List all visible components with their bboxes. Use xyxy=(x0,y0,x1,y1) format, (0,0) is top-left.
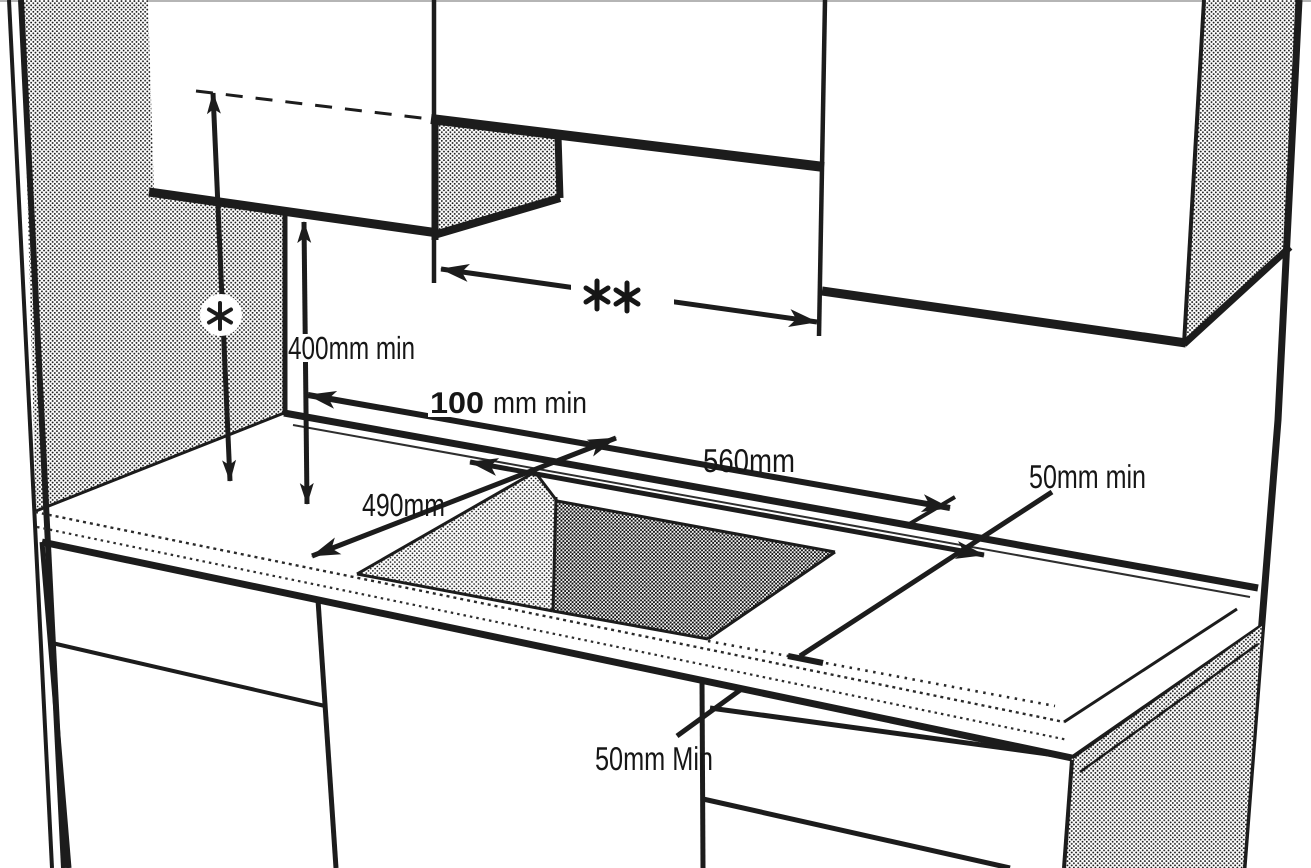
svg-text:50mm Min: 50mm Min xyxy=(595,740,713,777)
svg-text:50mm min: 50mm min xyxy=(1029,458,1146,495)
svg-text:560mm: 560mm xyxy=(703,442,795,479)
svg-text:100mm min: 100mm min xyxy=(430,387,587,420)
svg-text:490mm: 490mm xyxy=(362,487,445,523)
svg-text:400mm min: 400mm min xyxy=(288,330,415,366)
